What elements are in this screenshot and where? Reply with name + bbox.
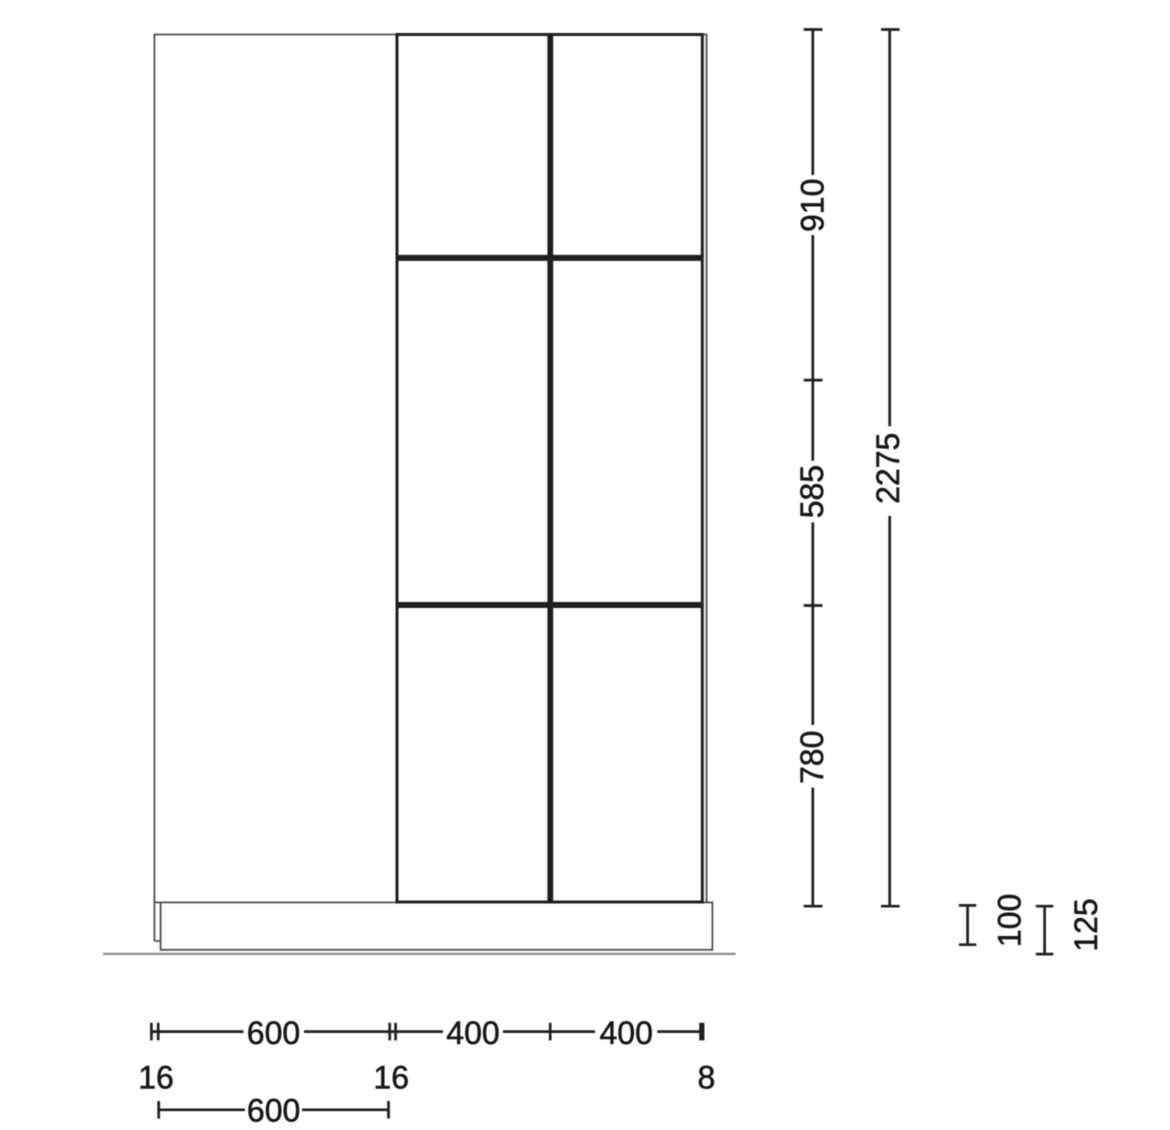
svg-text:585: 585 xyxy=(794,465,830,518)
svg-text:600: 600 xyxy=(247,1015,300,1051)
svg-text:125: 125 xyxy=(1068,898,1104,951)
svg-text:16: 16 xyxy=(138,1060,174,1096)
svg-text:400: 400 xyxy=(600,1015,653,1051)
svg-text:16: 16 xyxy=(373,1060,409,1096)
svg-text:2275: 2275 xyxy=(870,433,906,504)
svg-text:100: 100 xyxy=(991,894,1027,947)
svg-text:600: 600 xyxy=(247,1092,300,1128)
svg-text:910: 910 xyxy=(795,179,831,232)
svg-text:780: 780 xyxy=(794,731,830,784)
svg-text:8: 8 xyxy=(698,1060,716,1096)
svg-text:400: 400 xyxy=(446,1015,499,1051)
